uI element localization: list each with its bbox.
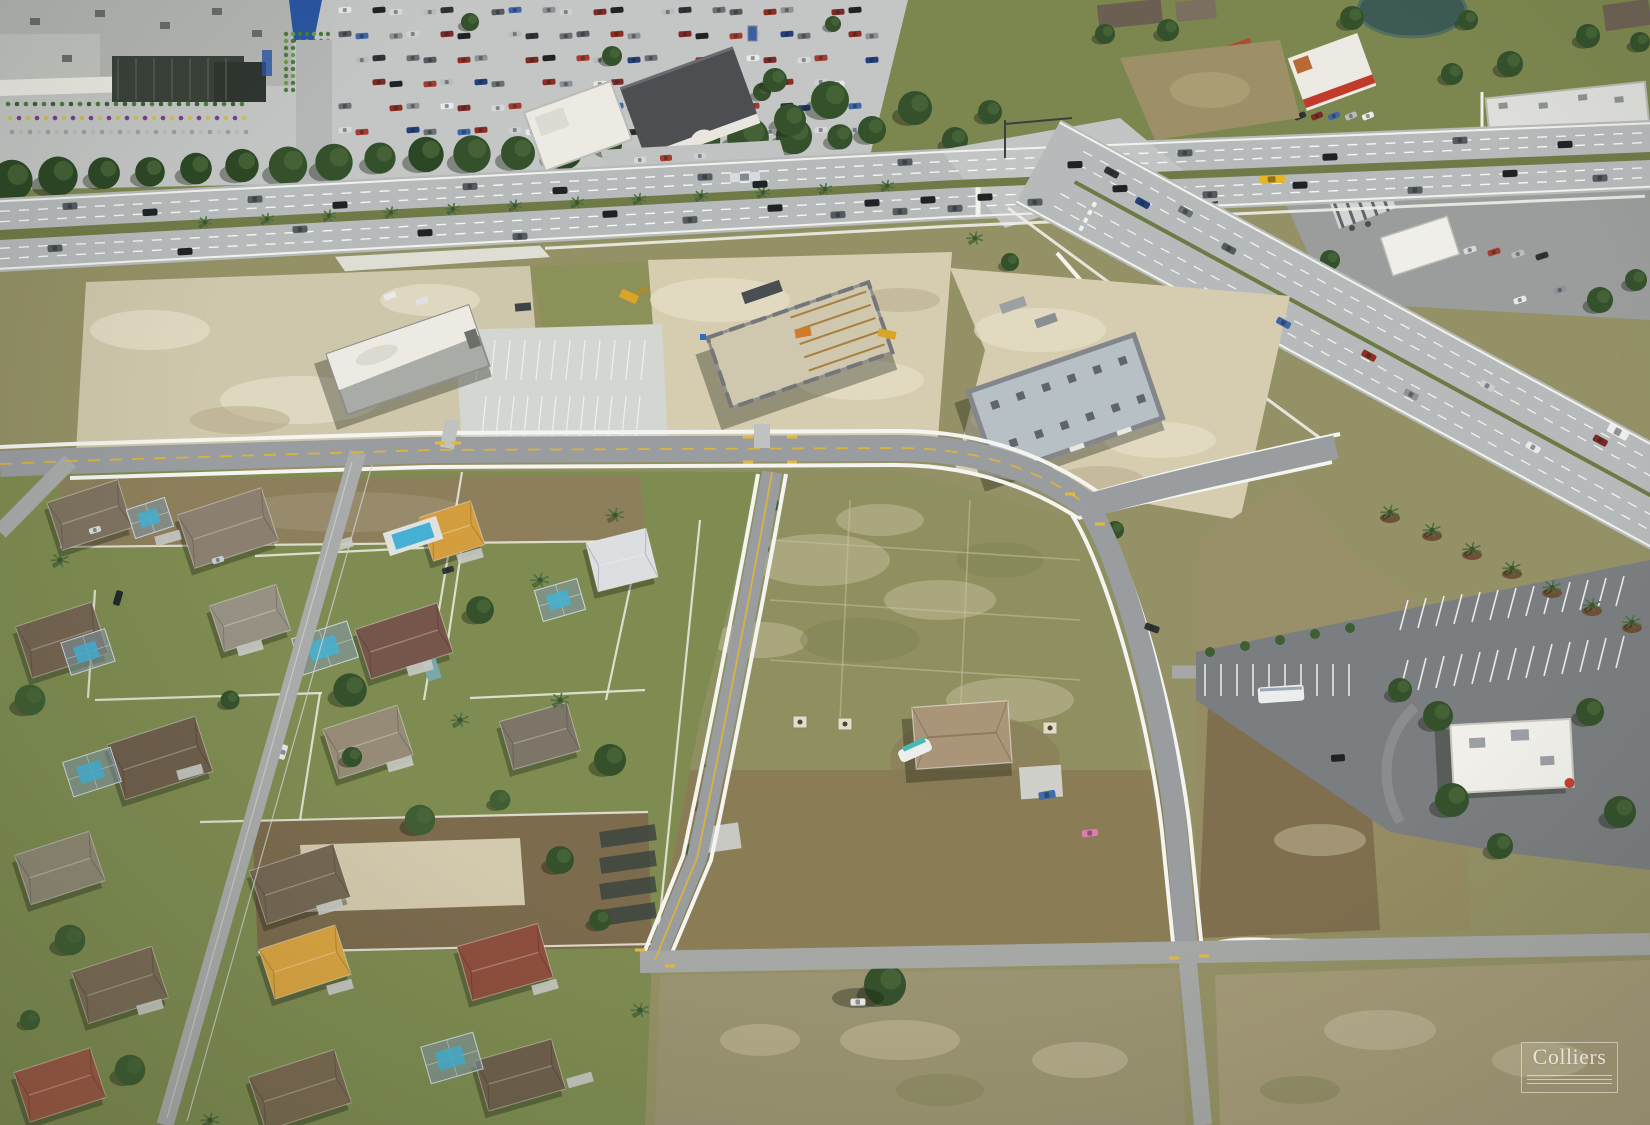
aerial-photo: Colliers [0, 0, 1650, 1125]
watermark-rule [1527, 1075, 1612, 1076]
colliers-watermark: Colliers [1521, 1042, 1618, 1093]
colliers-wordmark: Colliers [1527, 1045, 1612, 1069]
watermark-rule [1527, 1083, 1612, 1084]
aerial-photo-canvas [0, 0, 1650, 1125]
watermark-rule [1527, 1079, 1612, 1080]
